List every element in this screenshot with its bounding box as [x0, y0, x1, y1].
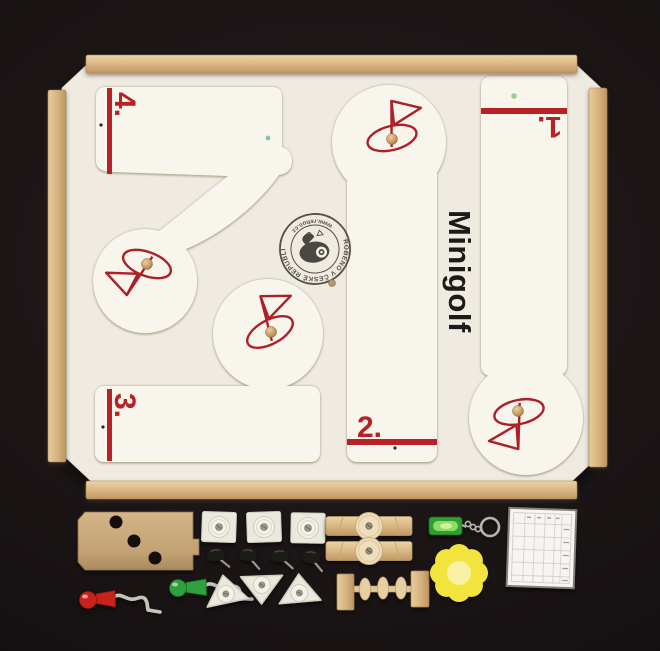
wooden-ball-hole-1 [513, 406, 524, 417]
product-photo-minigolf: 4. 3. 2. 1. Minigolf VYROBENO V ČESKÉ RE… [0, 0, 660, 651]
rail-bottom [86, 481, 577, 499]
square-bumper-1 [201, 511, 236, 542]
board-title-group: Minigolf [442, 210, 477, 333]
putter-red [80, 591, 161, 613]
square-bumper-3 [291, 513, 326, 544]
square-bumper-2 [246, 511, 281, 542]
square-bumpers [201, 511, 325, 543]
thumb-screws [206, 547, 323, 571]
accessories [78, 508, 576, 612]
thumb-screw-3 [271, 548, 293, 569]
level-keychain [429, 517, 499, 536]
mdf-punch-board [78, 512, 199, 570]
keychain-ring-icon [481, 518, 499, 536]
minigolf-scene: 4. 3. 2. 1. Minigolf VYROBENO V ČESKÉ RE… [0, 0, 660, 651]
pin-dot-course-4 [99, 123, 102, 126]
pin-dot-course-2 [393, 446, 396, 449]
paint-speck-teal-1 [266, 136, 271, 141]
hole-2-label: 2. [357, 411, 382, 444]
punch-hole-1 [110, 516, 123, 529]
score-pad [507, 508, 577, 588]
gate-obstacle [337, 571, 429, 610]
punch-hole-3 [149, 552, 162, 565]
thumb-screw-1 [206, 547, 229, 569]
punch-hole-2 [128, 535, 141, 548]
wooden-ball-hole-4 [142, 259, 153, 270]
rail-top [86, 55, 577, 73]
course-1-green [469, 361, 583, 475]
hole-4-label: 4. [108, 92, 141, 117]
surface-screw [329, 280, 336, 287]
paint-speck-teal-2 [511, 93, 517, 99]
board-title: Minigolf [442, 210, 477, 333]
wooden-ball-hole-3 [266, 327, 277, 338]
game-board: 4. 3. 2. 1. Minigolf VYROBENO V ČESKÉ RE… [48, 55, 607, 499]
thumb-screw-4 [301, 549, 324, 571]
rail-right [589, 88, 607, 467]
hole-3-label: 3. [108, 393, 141, 418]
triangle-bumpers [201, 571, 321, 607]
foam-flower [430, 544, 488, 602]
thumb-screw-2 [238, 547, 260, 568]
spinner-bar-1 [326, 513, 412, 540]
wooden-ball-hole-2 [387, 134, 398, 145]
spinner-bars [326, 513, 412, 565]
triangle-bumper-3 [277, 572, 321, 604]
spinner-bar-2 [326, 538, 412, 565]
hole-1-label: 1. [537, 110, 562, 143]
pin-dot-course-3 [101, 425, 104, 428]
rail-left [48, 90, 66, 462]
